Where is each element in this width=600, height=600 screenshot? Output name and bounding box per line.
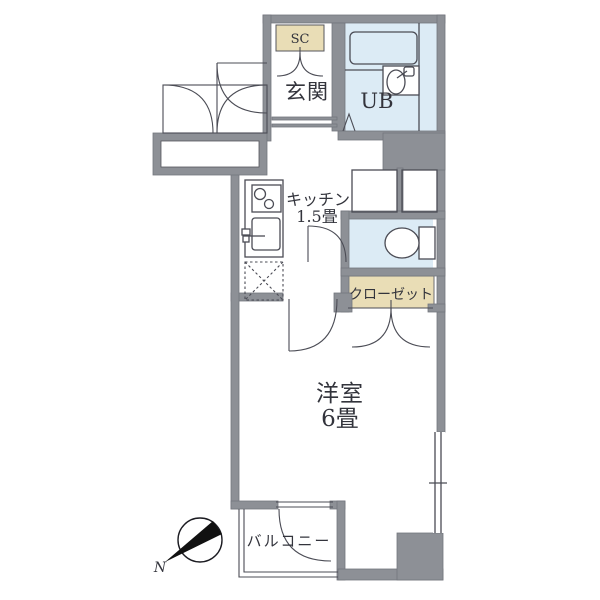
stove-burner-large-icon bbox=[255, 189, 266, 200]
toilet-bowl-icon bbox=[385, 228, 419, 258]
label-entrance: 玄関 bbox=[285, 80, 329, 104]
niche-right bbox=[402, 170, 437, 212]
sc-door-left-arc bbox=[277, 53, 300, 76]
wall-toilet-bottom bbox=[341, 268, 445, 276]
label-western-room-size: 6畳 bbox=[321, 406, 359, 432]
window-right bbox=[429, 432, 447, 533]
wall-mid-right-mass bbox=[383, 133, 445, 170]
toilet-fixtures bbox=[385, 227, 435, 259]
wall-left-lower bbox=[231, 167, 239, 509]
entrance-partition-track-2 bbox=[272, 124, 337, 127]
label-western-room: 洋室 bbox=[316, 381, 364, 407]
label-kitchen-size: 1.5畳 bbox=[296, 207, 337, 226]
closet-door-left-arc bbox=[352, 308, 391, 347]
label-unit-bath: UB bbox=[360, 89, 393, 113]
sink-faucet-handle-icon bbox=[243, 236, 249, 242]
wall-balcony-right bbox=[337, 501, 345, 580]
stove-burner-small-icon bbox=[265, 200, 274, 209]
front-door-arc bbox=[217, 63, 267, 113]
porch-box-interior bbox=[161, 141, 259, 167]
room-door-arc bbox=[289, 299, 337, 351]
label-balcony: バルコニー bbox=[247, 532, 332, 550]
compass-icon: N bbox=[153, 518, 222, 576]
floor-plan-drawing: N SC 玄関 UB キッチン 1.5畳 クローゼット 洋室 6畳 バルコニー bbox=[0, 0, 600, 600]
wall-top bbox=[263, 15, 445, 23]
meter-box-outline bbox=[163, 85, 267, 133]
sc-door-right-arc bbox=[300, 53, 323, 76]
sink-icon bbox=[252, 218, 280, 250]
wall-entrance-ub-divider bbox=[332, 23, 345, 131]
toilet-tank-icon bbox=[419, 227, 435, 259]
compass-north-label: N bbox=[153, 560, 167, 576]
niches bbox=[352, 170, 437, 212]
wall-right bbox=[437, 15, 445, 432]
floor-plan-canvas: N SC 玄関 UB キッチン 1.5畳 クローゼット 洋室 6畳 バルコニー bbox=[0, 0, 600, 600]
entrance-partition-track-1 bbox=[272, 117, 337, 120]
wall-bottom-right-mass bbox=[397, 533, 443, 580]
kitchen-fixtures bbox=[242, 180, 283, 300]
label-shoe-closet: SC bbox=[291, 32, 310, 47]
sink-faucet-base-icon bbox=[242, 229, 250, 235]
niche-left bbox=[352, 170, 397, 212]
label-closet: クローゼット bbox=[349, 287, 433, 303]
wall-room-bottom-left bbox=[231, 501, 278, 509]
corridor-door-arc bbox=[308, 226, 346, 262]
closet-door-right-arc bbox=[391, 308, 430, 347]
meter-box-left-arc bbox=[163, 85, 213, 133]
